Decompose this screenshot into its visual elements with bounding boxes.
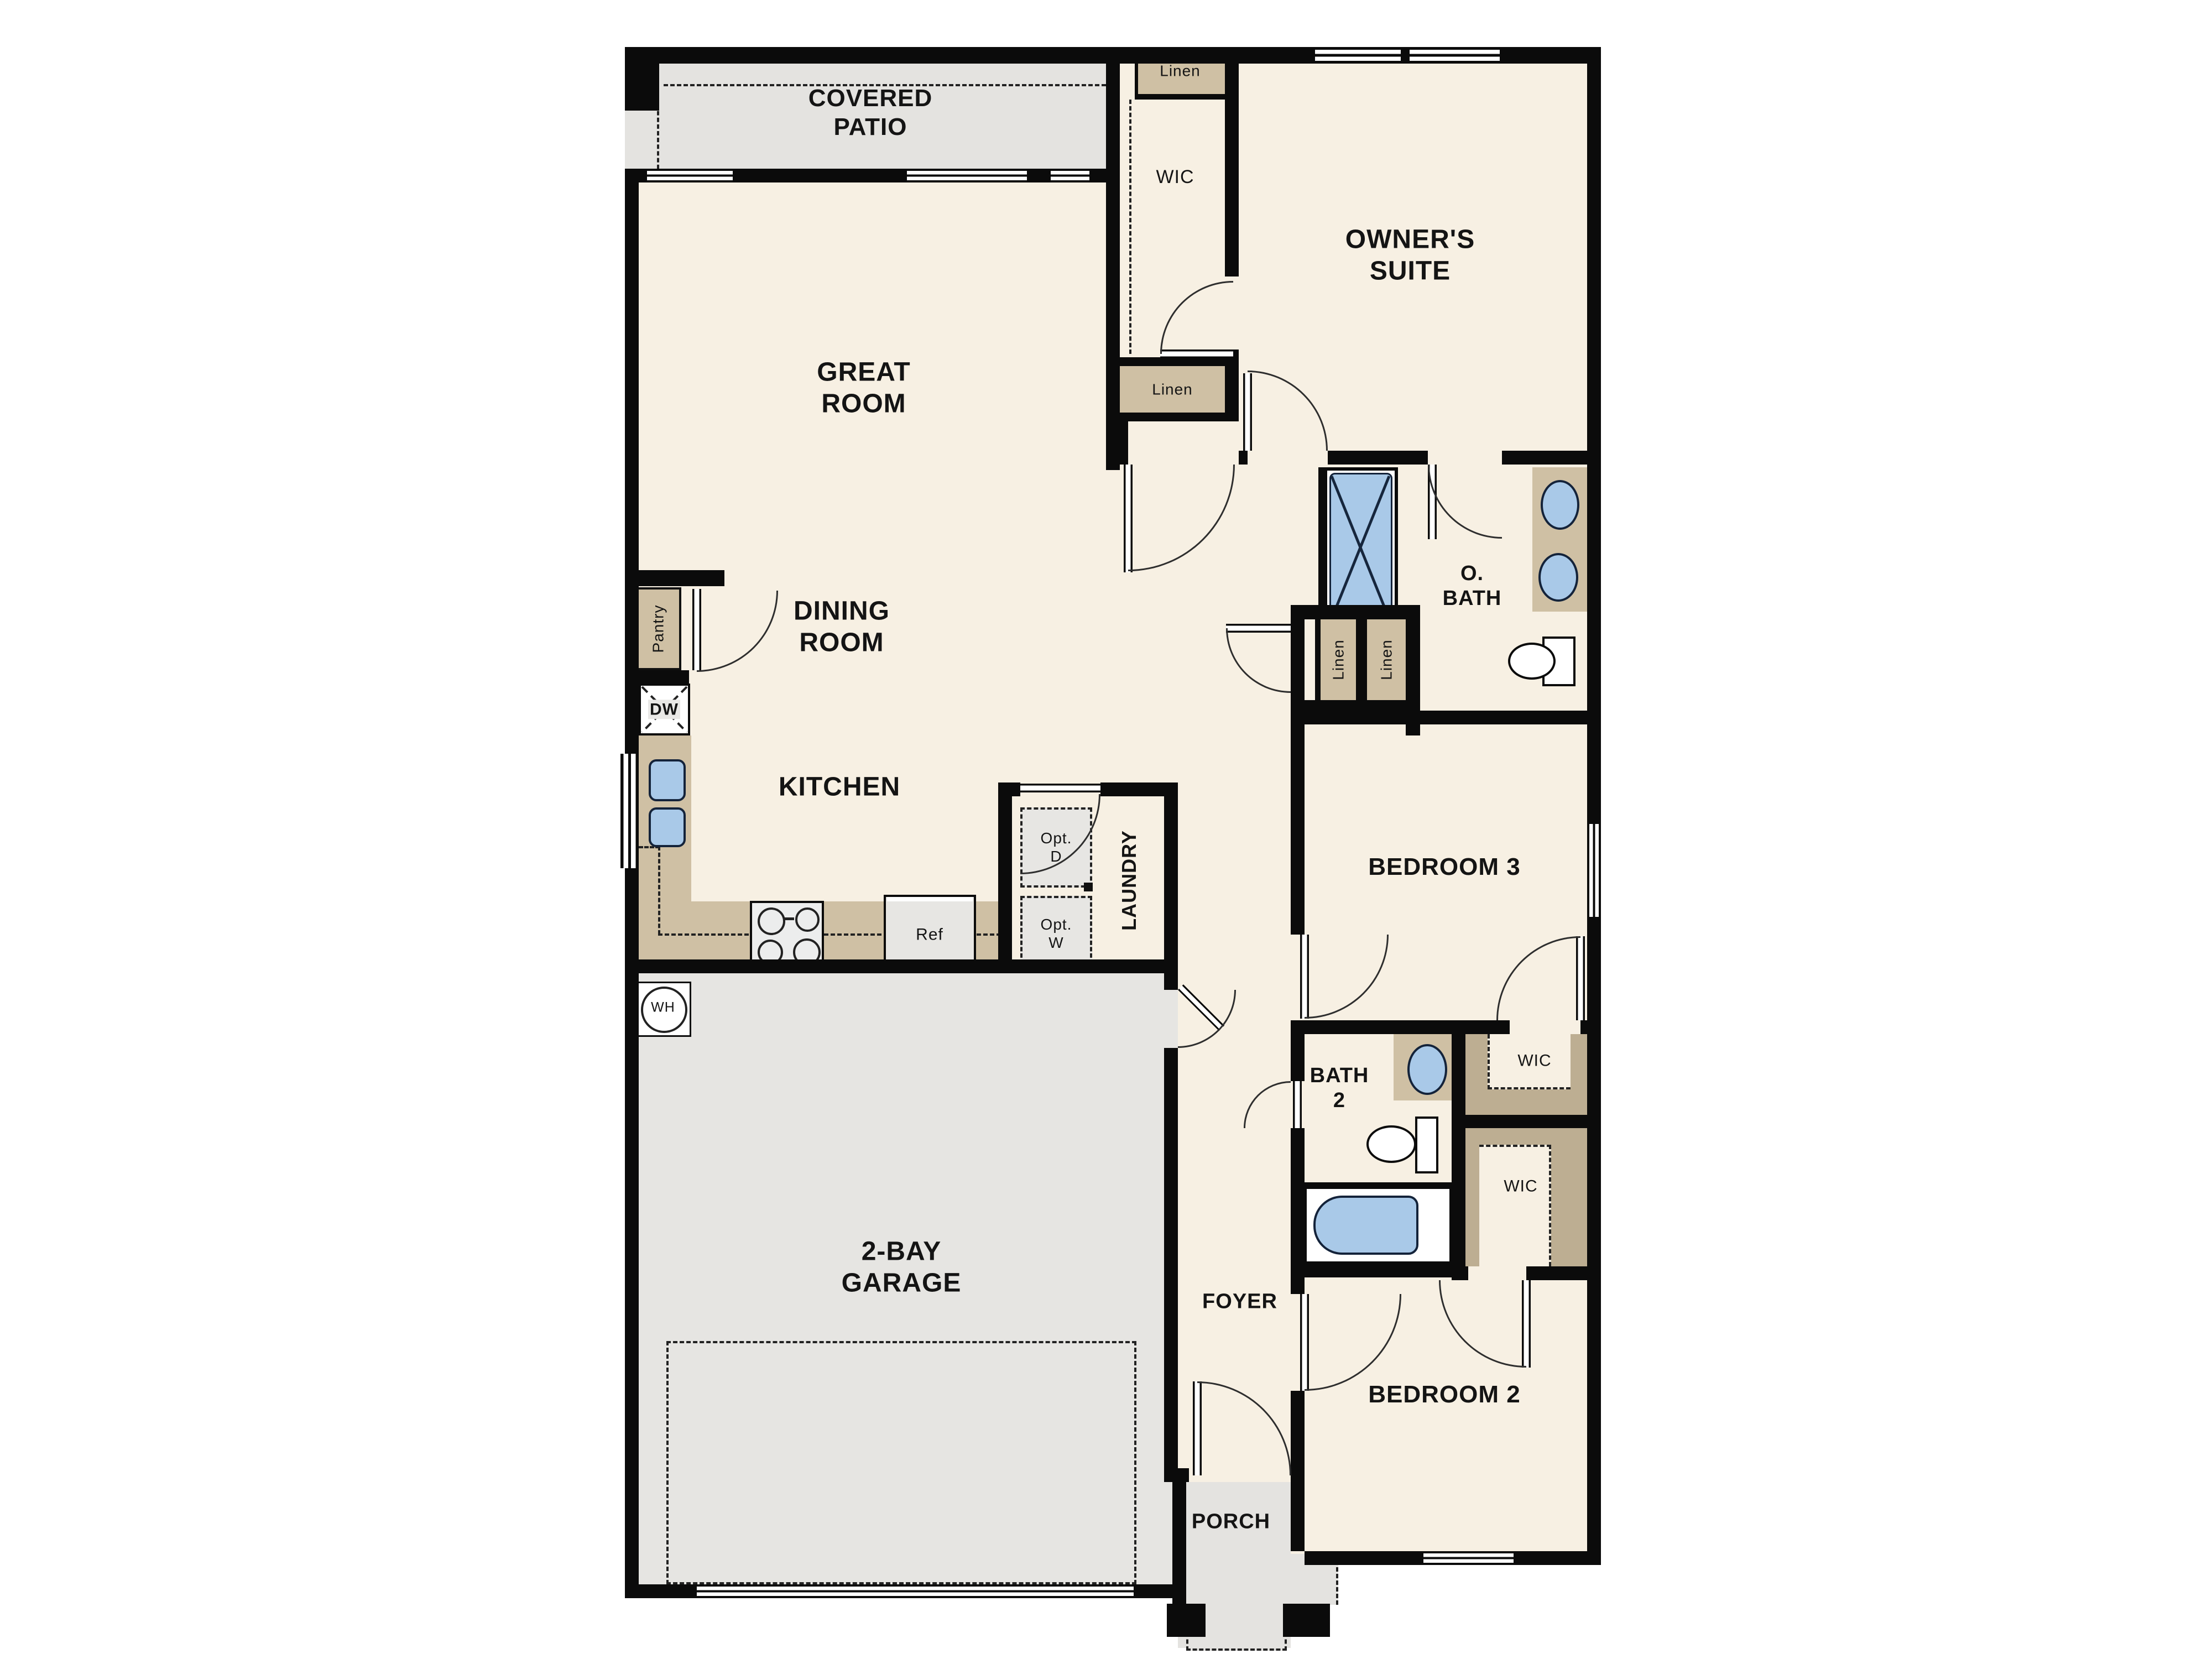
kitchen-sink-bowl	[649, 759, 686, 801]
covered-patio-label: COVERED PATIO	[808, 84, 933, 142]
wall-segment	[1401, 47, 1410, 64]
wic-bedroom2-label: WIC	[1504, 1176, 1537, 1196]
bathtub	[1313, 1196, 1418, 1255]
optional-washer-label: Opt. W	[1041, 915, 1072, 952]
floor-plan-page: { "title": "Single-story floor plan", "c…	[0, 0, 2212, 1659]
garage-bay-dashed	[666, 1341, 1136, 1584]
stove	[750, 901, 824, 968]
wall-segment	[1305, 1551, 1423, 1565]
toilet-tank	[1415, 1117, 1438, 1173]
wall-segment	[1027, 169, 1051, 182]
window	[1410, 47, 1500, 64]
foyer-label: FOYER	[1202, 1290, 1277, 1314]
wall-segment	[1291, 1128, 1305, 1294]
wall-segment	[1291, 605, 1305, 935]
wic-bedroom3-label: WIC	[1517, 1051, 1551, 1070]
wall-segment	[1315, 619, 1321, 700]
linen-mid-label: Linen	[1152, 380, 1193, 398]
wall-segment	[1452, 1034, 1465, 1266]
wall-segment	[1305, 1182, 1452, 1187]
wall-segment	[1225, 47, 1239, 276]
wic-hall-label: WIC	[1156, 166, 1194, 188]
wall-segment	[1106, 413, 1239, 421]
wall-segment	[625, 47, 659, 111]
window	[620, 754, 639, 868]
pantry-label: Pantry	[649, 605, 667, 653]
wall-segment	[1500, 47, 1601, 64]
wall-segment	[1356, 619, 1367, 700]
wall-segment	[1587, 917, 1601, 1565]
wall-segment	[733, 169, 907, 182]
wall-segment	[1452, 1115, 1601, 1128]
door-leaf	[1293, 1081, 1302, 1128]
window	[1587, 824, 1601, 917]
wall-segment	[1100, 782, 1178, 796]
garage-door	[697, 1584, 1134, 1598]
wall-segment	[1106, 47, 1120, 470]
wall-segment	[1502, 451, 1601, 465]
wall-segment	[1164, 973, 1178, 990]
closet-rod-dashed	[1129, 100, 1131, 354]
wall-segment	[1291, 605, 1414, 619]
linen-left-label: Linen	[1329, 639, 1347, 680]
great-room-label: GREAT ROOM	[817, 357, 910, 419]
wall-segment	[1112, 47, 1315, 64]
door-leaf	[1020, 784, 1100, 792]
refrigerator-label: Ref	[916, 925, 943, 944]
owners-suite-label: OWNER'S SUITE	[1345, 224, 1475, 286]
wall-segment	[625, 1584, 697, 1598]
wall-segment	[1305, 1264, 1452, 1277]
wall-segment	[998, 796, 1012, 973]
wic-bedroom2-floor	[1479, 1145, 1551, 1266]
vanity-sink	[1541, 480, 1579, 530]
sliding-door-window	[907, 169, 1027, 182]
dining-room-label: DINING ROOM	[794, 596, 890, 658]
wall-segment	[1225, 366, 1239, 413]
wall-segment	[1239, 451, 1248, 465]
floor-plan: DW Ref Pantry WH Opt. D Opt. W Linen WIC…	[625, 22, 1604, 1653]
wall-segment	[1291, 1020, 1510, 1034]
window	[1423, 1551, 1514, 1565]
wall-segment	[1291, 1391, 1305, 1551]
wall-segment	[998, 782, 1020, 796]
toilet-bowl	[1366, 1125, 1416, 1163]
vanity-sink	[1538, 553, 1578, 602]
wall-segment	[1291, 711, 1601, 724]
wall-segment	[1514, 1551, 1601, 1565]
sliding-door-window	[647, 169, 733, 182]
linen-top-label: Linen	[1160, 61, 1201, 80]
wall-segment	[1172, 1482, 1186, 1620]
burner	[758, 907, 785, 935]
wall-segment	[1164, 796, 1178, 973]
owner-bath-label: O. BATH	[1443, 561, 1502, 611]
wall-segment	[1526, 1266, 1601, 1280]
wall-segment	[1328, 451, 1428, 465]
wall-segment	[1580, 1020, 1601, 1034]
porch-label: PORCH	[1192, 1510, 1270, 1535]
linen-right-label: Linen	[1377, 639, 1395, 680]
wall-segment	[625, 570, 724, 586]
wall-segment	[625, 973, 639, 1598]
dishwasher-label: DW	[648, 700, 680, 719]
wall-segment	[1452, 1266, 1468, 1280]
laundry-hookup-square	[1084, 883, 1093, 891]
wall-segment	[625, 868, 639, 959]
wall-segment	[1134, 1584, 1178, 1598]
toilet-bowl	[1508, 643, 1556, 680]
counter-dashed-line	[658, 846, 660, 935]
garage-label: 2-BAY GARAGE	[842, 1236, 962, 1298]
bedroom2-label: BEDROOM 2	[1368, 1380, 1520, 1409]
wall-segment	[625, 47, 1112, 64]
wall-segment	[1106, 357, 1239, 366]
wall-segment	[1164, 1048, 1178, 1482]
kitchen-label: KITCHEN	[779, 772, 900, 804]
wall-segment	[625, 670, 689, 684]
fridge-door-seam	[887, 897, 973, 901]
bedroom3-label: BEDROOM 3	[1368, 853, 1520, 881]
water-heater-label: WH	[651, 999, 675, 1016]
wall-segment	[625, 169, 639, 754]
laundry-label: LAUNDRY	[1118, 830, 1141, 931]
bath2-label: BATH 2	[1310, 1063, 1369, 1113]
shower	[1318, 467, 1398, 628]
bath2-sink	[1407, 1044, 1447, 1095]
burner	[795, 907, 820, 932]
bathtub-surround	[1305, 1187, 1452, 1264]
wall-segment	[625, 959, 1178, 973]
wall-segment	[1587, 47, 1601, 824]
window	[1315, 47, 1401, 64]
wall-segment	[1283, 1604, 1330, 1637]
wall-segment	[1167, 1604, 1206, 1637]
wall-segment	[1178, 1468, 1189, 1482]
burner-divider	[783, 917, 794, 920]
kitchen-sink-bowl	[649, 807, 686, 847]
window	[1051, 169, 1089, 182]
